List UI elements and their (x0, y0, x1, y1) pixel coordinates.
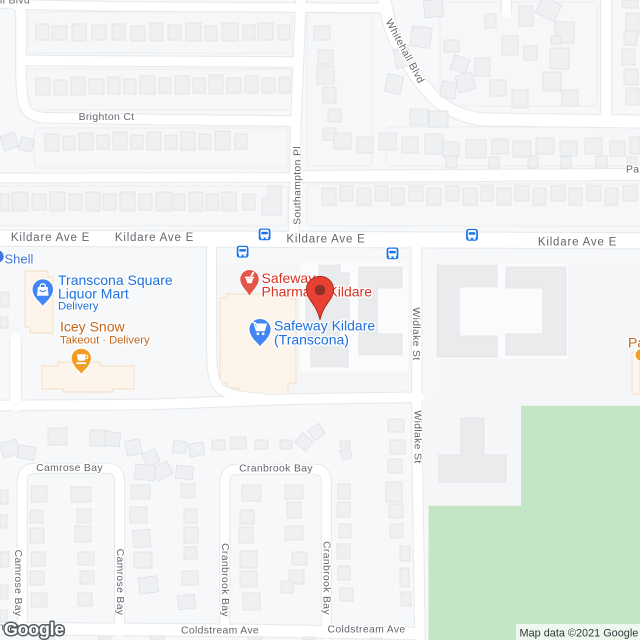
svg-text:Cranbrook Bay: Cranbrook Bay (219, 543, 230, 617)
svg-text:Coldstream Ave: Coldstream Ave (181, 625, 259, 636)
svg-text:Delivery: Delivery (58, 301, 99, 313)
svg-text:Widlake St: Widlake St (410, 307, 421, 360)
svg-text:Cranbrook Bay: Cranbrook Bay (320, 541, 331, 615)
svg-text:Cranbrook Bay: Cranbrook Bay (239, 463, 313, 474)
svg-text:Kildare Ave E: Kildare Ave E (538, 237, 617, 249)
svg-text:Google: Google (4, 619, 64, 639)
svg-text:Kildare Ave E: Kildare Ave E (115, 232, 194, 244)
svg-text:Kildare Ave E: Kildare Ave E (286, 234, 365, 246)
svg-text:(Transcona): (Transcona) (274, 332, 349, 348)
svg-text:ll Blvd: ll Blvd (0, 0, 30, 6)
svg-text:Southampton Pl: Southampton Pl (292, 146, 303, 225)
svg-text:Camrose Bay: Camrose Bay (114, 549, 125, 616)
svg-text:Camrose Bay: Camrose Bay (12, 550, 23, 617)
svg-text:Icey Snow: Icey Snow (60, 319, 125, 335)
svg-text:Pand: Pand (626, 164, 640, 175)
svg-text:Brighton Ct: Brighton Ct (79, 112, 135, 123)
svg-text:Liquor Mart: Liquor Mart (58, 286, 129, 302)
svg-text:Kildare Ave E: Kildare Ave E (11, 232, 90, 244)
svg-text:Takeout · Delivery: Takeout · Delivery (60, 335, 150, 347)
svg-text:Coldstream Ave: Coldstream Ave (327, 624, 405, 635)
svg-text:Camrose Bay: Camrose Bay (36, 463, 103, 474)
svg-text:Shell: Shell (5, 252, 34, 267)
svg-text:Widlake St: Widlake St (411, 410, 422, 463)
svg-text:Pa: Pa (628, 335, 640, 351)
svg-text:Map data ©2021 Google: Map data ©2021 Google (520, 627, 639, 639)
